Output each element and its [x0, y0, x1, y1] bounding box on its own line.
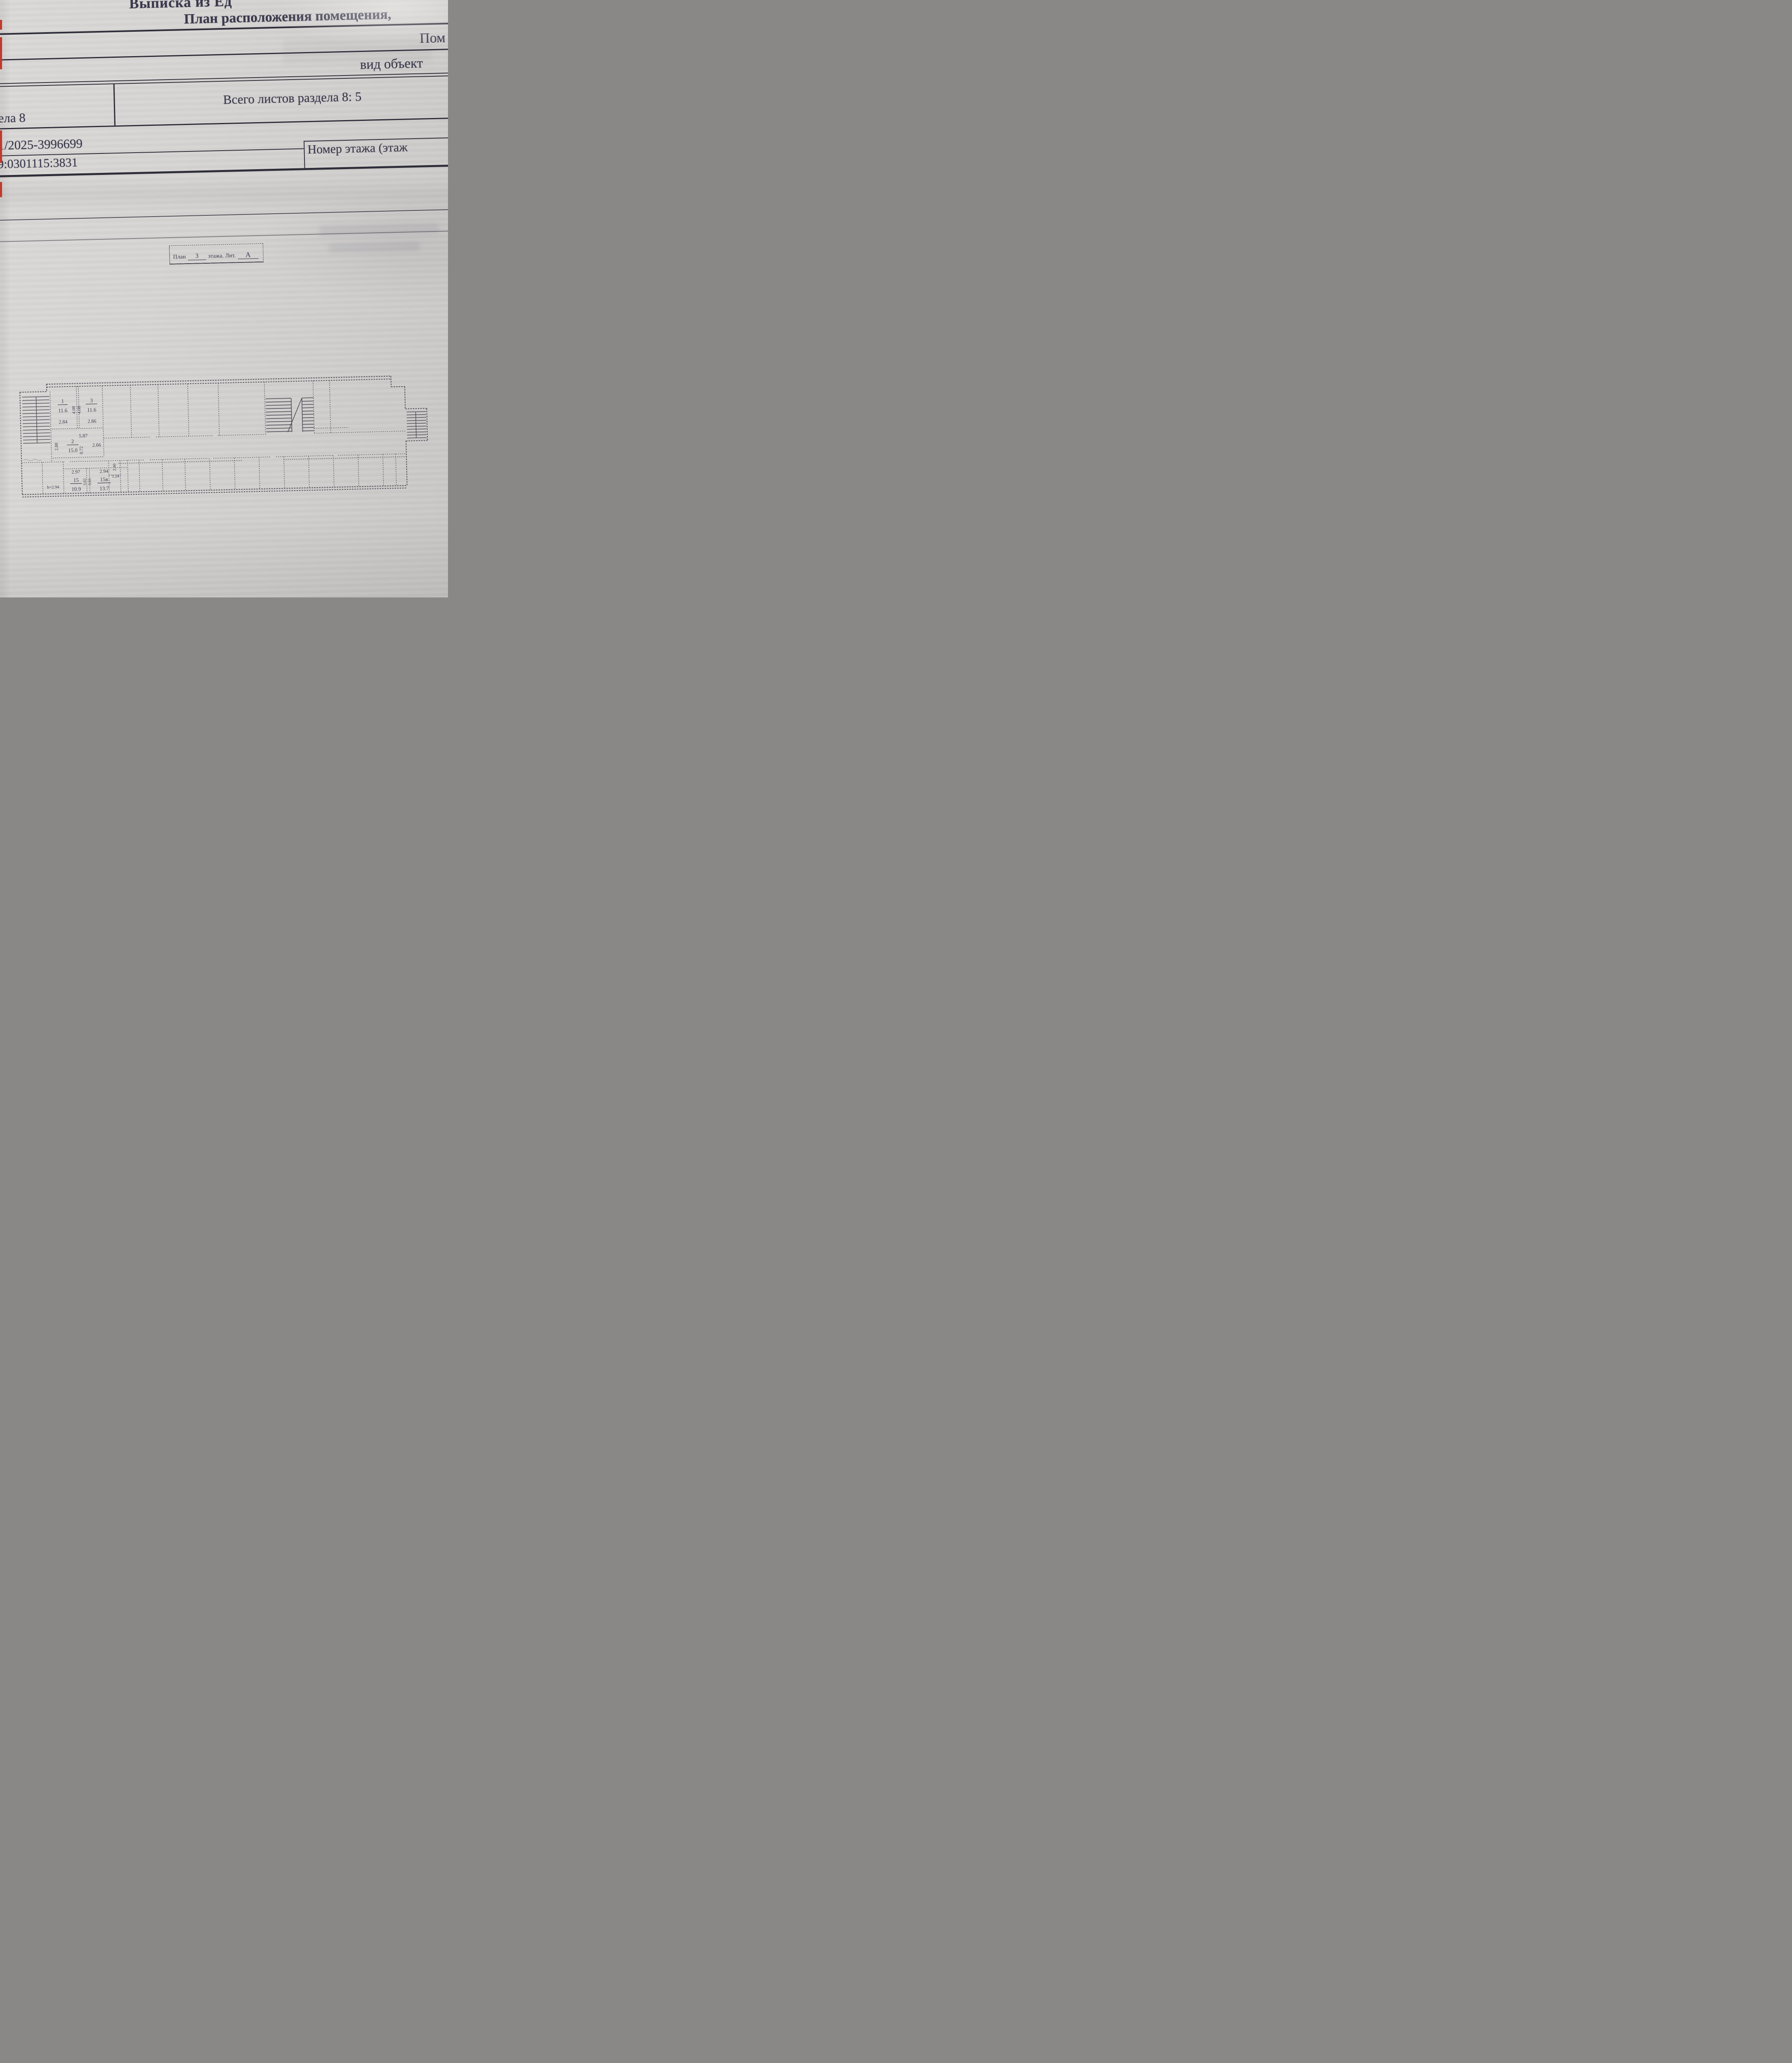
- room2-number: 2: [71, 438, 74, 444]
- room1-number: 1: [61, 398, 64, 404]
- room15-number: 15: [73, 477, 79, 483]
- section-tail: ела 8: [0, 110, 26, 126]
- room15-area: 10.9: [71, 486, 81, 492]
- rule-3a: [0, 72, 448, 85]
- center-staircase: [266, 398, 314, 433]
- photo-edge-artifact: [0, 182, 2, 197]
- floor-number-label: Номер этажа (этаж: [307, 140, 408, 157]
- room3-number: 3: [90, 397, 93, 404]
- nook-height-dim: 2.40: [112, 463, 117, 471]
- extract-number: 1/2025-3996699: [0, 136, 83, 153]
- marginal-scribble: [24, 459, 42, 461]
- depth-dim-a: 4.08: [71, 406, 76, 414]
- caption-floor-word: этажа. Лит.: [208, 253, 236, 260]
- room2-mid-dim: 0.72: [79, 446, 84, 454]
- room15v-width: 2.94: [99, 468, 108, 474]
- sheets-total: Всего листов раздела 8: 5: [181, 88, 404, 109]
- caption-liter-value: А: [238, 251, 258, 259]
- rule-4: [0, 117, 448, 130]
- left-staircase: [22, 397, 50, 444]
- divider-floor-cell: [304, 141, 305, 169]
- depth-dim-b: 4.08: [77, 406, 82, 414]
- plan-caption-box: План 3 этажа. Лит. А: [169, 243, 264, 264]
- room15v-number: 15в: [100, 476, 108, 482]
- room2-area: 15.0: [68, 447, 78, 453]
- room2-left-dim: 2.88: [54, 442, 59, 451]
- cadastral-number: 9:0301115:3831: [0, 156, 78, 172]
- caption-floor-value: 3: [188, 253, 206, 260]
- room1-area: 11.6: [58, 407, 68, 414]
- height-note: h=2.94: [47, 485, 60, 490]
- caption-plan-word: План: [173, 254, 186, 261]
- room15-width: 2.97: [71, 469, 80, 474]
- room3-width: 2.86: [87, 418, 96, 424]
- nook-width-dim: 1.24: [112, 474, 119, 479]
- photo-edge-artifact: [0, 37, 2, 69]
- document-photo: Выписка из Ед План расположения помещени…: [0, 0, 448, 597]
- extract-title: Выписка из Ед: [129, 0, 232, 12]
- right-staircase: [407, 412, 427, 438]
- room2-top-dim: 5.87: [79, 433, 87, 439]
- faint-streak: [283, 36, 431, 64]
- faint-stamp-ghost: [319, 223, 439, 236]
- room15v-area: 13.7: [99, 485, 109, 492]
- faint-stamp-ghost: [329, 241, 420, 253]
- photo-edge-artifact: [0, 20, 2, 30]
- rule-7: [0, 209, 448, 222]
- wall-dim-a: 3.65: [83, 478, 87, 486]
- wall-dim-b: 3.65: [87, 478, 92, 486]
- room2-right-dim: 2.66: [92, 442, 101, 448]
- divider-sheets-cell: [113, 83, 116, 125]
- room1-width: 2.84: [59, 419, 67, 425]
- room-labels: 1 11.6 2.84 4.08 4.08 3 11.6 2.86 2.88 2…: [45, 397, 120, 493]
- paper-sheet: Выписка из Ед План расположения помещени…: [0, 0, 448, 597]
- floor-plan-drawing: 1 11.6 2.84 4.08 4.08 3 11.6 2.86 2.88 2…: [17, 368, 437, 502]
- room3-area: 11.6: [87, 406, 97, 413]
- photo-edge-artifact: [0, 130, 2, 163]
